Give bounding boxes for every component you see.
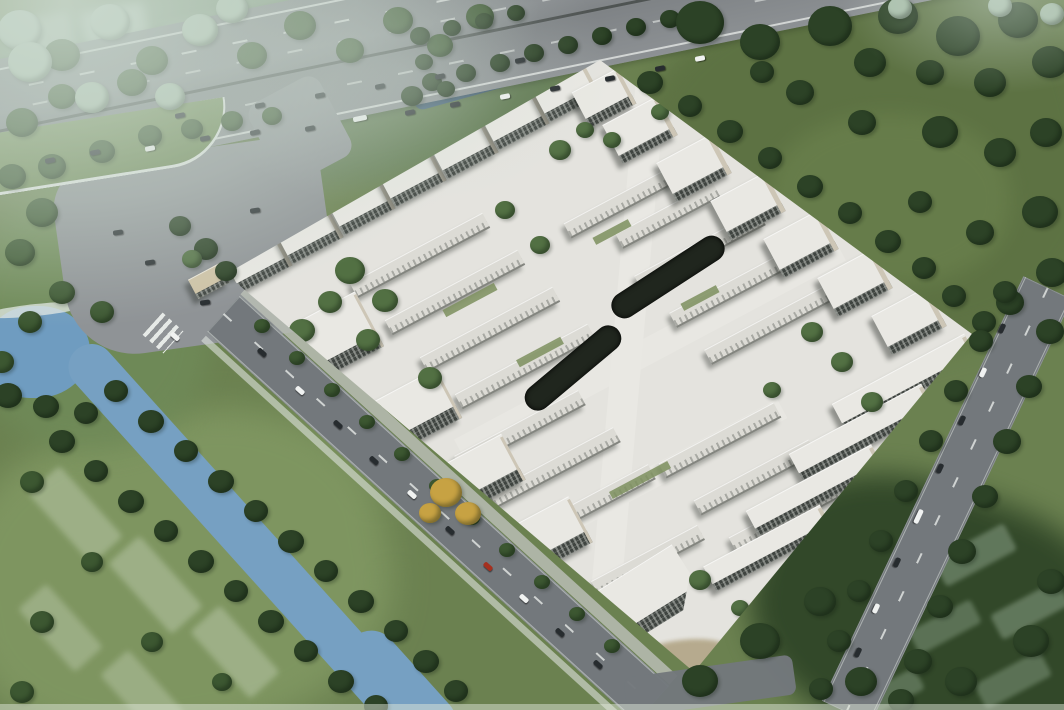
- aerial-rendering: [0, 0, 1064, 710]
- bottom-edge-strip: [0, 704, 1064, 710]
- fx-layer: [0, 0, 1064, 710]
